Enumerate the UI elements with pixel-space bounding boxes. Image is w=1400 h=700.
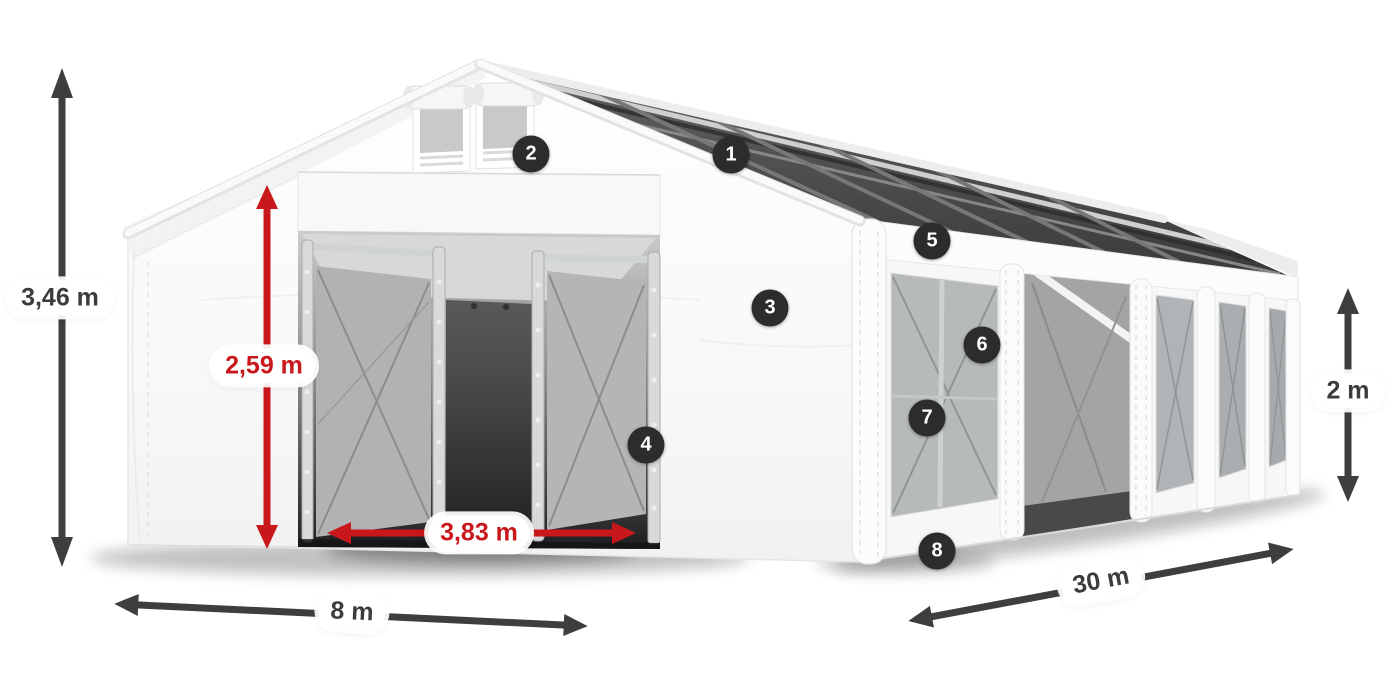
- door-panel-right: [532, 251, 660, 544]
- dim-label-door-width: 3,83 m: [428, 515, 530, 550]
- door-panel-left: [302, 240, 445, 542]
- tent-dimension-diagram: 3,46 m 2,59 m 3,83 m 8 m 30 m 2 m 1 2 3 …: [0, 0, 1400, 700]
- callout-badge-1[interactable]: 1: [713, 137, 750, 174]
- dim-label-total-height: 3,46 m: [9, 280, 111, 315]
- side-window-3: [1219, 302, 1246, 478]
- front-corner-post: [852, 219, 886, 564]
- dim-label-width: 8 m: [318, 593, 387, 631]
- front-door-opening: [298, 172, 660, 549]
- callout-badge-3[interactable]: 3: [752, 290, 789, 327]
- side-window-4: [1269, 308, 1287, 467]
- side-window-2: [1156, 295, 1194, 493]
- callout-badge-5[interactable]: 5: [914, 223, 951, 260]
- side-window-1: [891, 273, 998, 517]
- door-header-panel: [298, 172, 660, 235]
- dim-arrow-total-height: [51, 68, 73, 567]
- callout-badge-7[interactable]: 7: [909, 400, 946, 437]
- side-open-section: [1022, 262, 1134, 537]
- callout-badge-2[interactable]: 2: [513, 136, 550, 173]
- dim-label-side-height: 2 m: [1314, 373, 1381, 408]
- tent-illustration: [0, 0, 1400, 700]
- callout-badge-4[interactable]: 4: [628, 427, 665, 464]
- callout-badge-8[interactable]: 8: [919, 533, 956, 570]
- dim-label-inner-height: 2,59 m: [213, 348, 315, 383]
- callout-badge-6[interactable]: 6: [964, 327, 1001, 364]
